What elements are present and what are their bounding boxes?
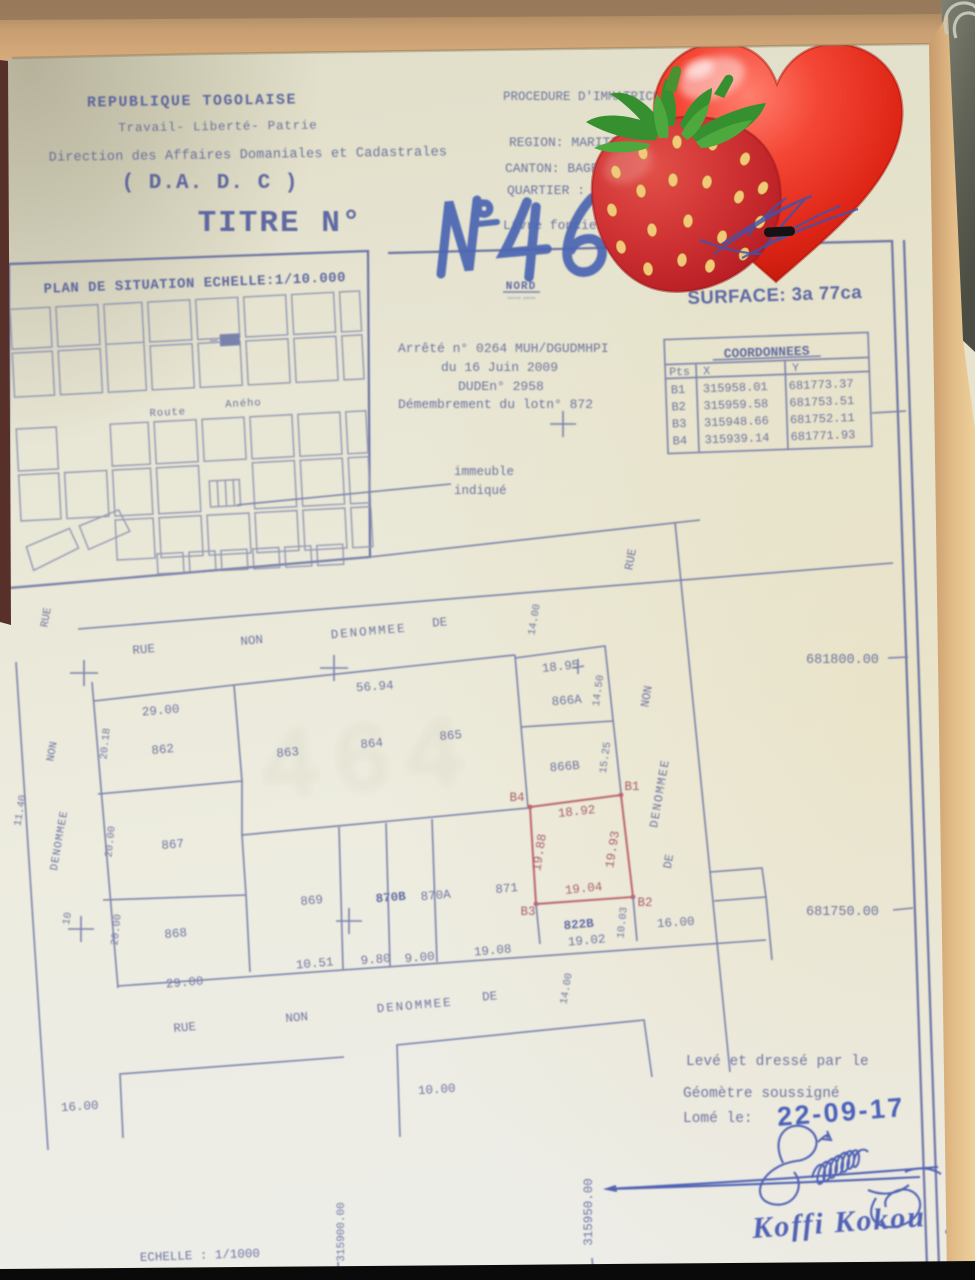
svg-text:Arrêté n° 0264 MUH/DGUDMHPI: Arrêté n° 0264 MUH/DGUDMHPI	[398, 341, 609, 356]
svg-text:DE: DE	[661, 853, 677, 870]
svg-text:862: 862	[151, 742, 175, 758]
svg-text:315950.00: 315950.00	[582, 1178, 596, 1246]
svg-text:681773.37: 681773.37	[789, 377, 854, 393]
svg-text:681771.93: 681771.93	[790, 428, 855, 444]
svg-text:9.00: 9.00	[404, 950, 435, 967]
svg-text:TITRE N°: TITRE N°	[198, 206, 363, 241]
svg-text:866B: 866B	[549, 759, 581, 776]
svg-text:16.00: 16.00	[657, 915, 695, 932]
svg-text:B4: B4	[509, 791, 524, 805]
svg-text:DE: DE	[482, 989, 498, 1004]
svg-text:Route: Route	[149, 406, 186, 420]
svg-text:B3: B3	[520, 905, 535, 919]
svg-text:10.00: 10.00	[418, 1082, 456, 1099]
svg-text:16.00: 16.00	[61, 1099, 99, 1116]
svg-text:laisse passe: laisse passe	[507, 296, 536, 301]
svg-text:868: 868	[164, 926, 188, 942]
svg-text:Pts: Pts	[669, 366, 690, 380]
svg-text:56.94: 56.94	[356, 679, 394, 696]
svg-text:870B: 870B	[375, 890, 407, 907]
svg-text:867: 867	[161, 837, 185, 853]
svg-text:B4: B4	[672, 434, 687, 448]
svg-text:681753.51: 681753.51	[789, 394, 854, 410]
svg-text:865: 865	[439, 728, 463, 744]
svg-text:315959.58: 315959.58	[703, 397, 768, 413]
svg-text:X: X	[703, 365, 710, 378]
svg-text:B1: B1	[671, 383, 686, 397]
svg-text:870A: 870A	[420, 888, 452, 905]
svg-text:315958.01: 315958.01	[703, 380, 768, 396]
svg-text:DE: DE	[432, 615, 448, 630]
svg-text:464: 464	[257, 701, 480, 829]
svg-text:B2: B2	[671, 400, 686, 414]
svg-text:9.80: 9.80	[360, 952, 391, 969]
svg-text:681800.00: 681800.00	[806, 653, 879, 668]
svg-text:DUDEn° 2958: DUDEn° 2958	[458, 379, 544, 394]
svg-text:REPUBLIQUE TOGOLAISE: REPUBLIQUE TOGOLAISE	[87, 92, 297, 112]
svg-text:315900.00: 315900.00	[336, 1202, 348, 1261]
svg-text:indiqué: indiqué	[454, 484, 507, 498]
svg-text:CANTON: BAGB: CANTON: BAGB	[505, 161, 599, 176]
svg-text:B1: B1	[624, 780, 639, 794]
svg-text:Travail- Liberté- Patrie: Travail- Liberté- Patrie	[118, 119, 317, 136]
svg-text:Y: Y	[792, 362, 799, 375]
svg-text:681750.00: 681750.00	[806, 905, 879, 920]
svg-text:NON: NON	[240, 633, 264, 649]
svg-text:RUE: RUE	[173, 1020, 197, 1036]
svg-text:871: 871	[495, 881, 519, 897]
svg-text:681752.11: 681752.11	[790, 411, 855, 427]
svg-text:Lomé le:: Lomé le:	[683, 1111, 753, 1127]
svg-text:immeuble: immeuble	[454, 465, 514, 479]
svg-text:B2: B2	[637, 896, 652, 910]
svg-text:Levé et dressé par le: Levé et dressé par le	[686, 1054, 869, 1070]
svg-text:863: 863	[276, 745, 300, 761]
svg-text:864: 864	[360, 736, 384, 752]
svg-text:Aného: Aného	[225, 397, 262, 411]
svg-text:Démembrement du lotn° 872: Démembrement du lotn° 872	[398, 397, 593, 412]
svg-text:822B: 822B	[563, 917, 595, 934]
svg-text:315948.66: 315948.66	[704, 414, 769, 430]
svg-text:315939.14: 315939.14	[704, 431, 769, 447]
svg-text:du 16 Juin 2009: du 16 Juin 2009	[441, 360, 558, 375]
svg-text:869: 869	[300, 893, 324, 909]
svg-text:QUARTIER :: QUARTIER :	[507, 183, 585, 198]
svg-text:RUE: RUE	[132, 642, 156, 658]
svg-text:B3: B3	[672, 417, 687, 431]
svg-text:10: 10	[61, 911, 75, 926]
svg-text:866A: 866A	[551, 693, 583, 710]
svg-text:( D.A. D. C ): ( D.A. D. C )	[122, 172, 299, 195]
svg-text:NON: NON	[285, 1010, 309, 1026]
